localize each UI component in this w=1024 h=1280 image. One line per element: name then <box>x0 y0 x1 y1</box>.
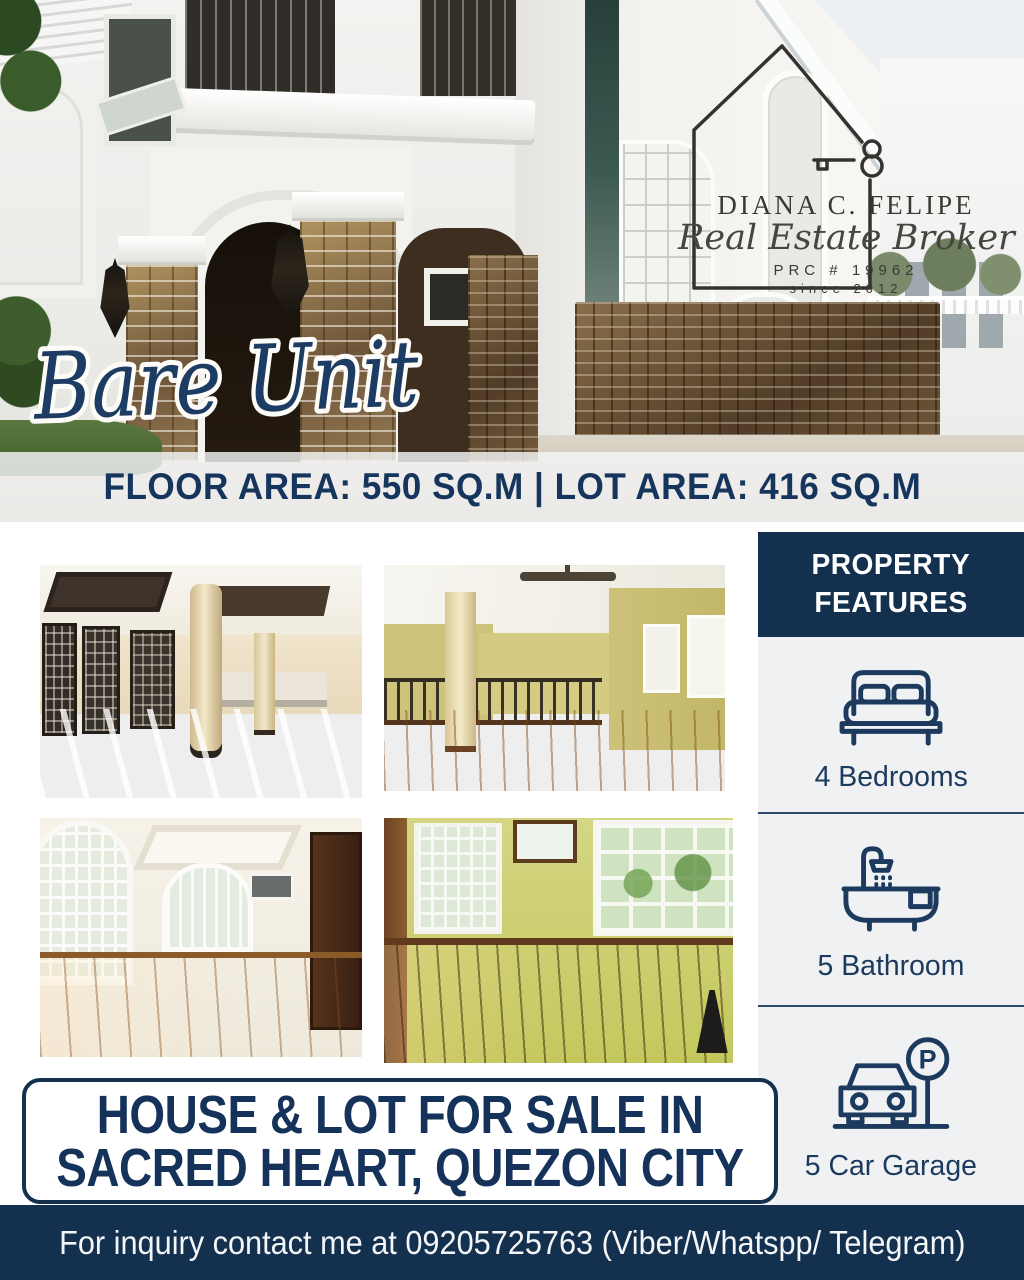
car-parking-icon: P <box>827 1032 955 1138</box>
headline-line1: HOUSE & LOT FOR SALE IN <box>97 1087 704 1143</box>
feature-label: 5 Bathroom <box>818 950 965 983</box>
headline-line2: SACRED HEART, QUEZON CITY <box>56 1140 744 1196</box>
living-area-photo <box>40 565 362 798</box>
photo-wood-floor <box>384 710 725 791</box>
footer-contact-text: For inquiry contact me at 09205725763 (V… <box>59 1224 965 1262</box>
brand-license: PRC # 19962 <box>678 262 1014 279</box>
photo-window <box>414 823 502 934</box>
feature-label: 5 Car Garage <box>805 1150 977 1183</box>
photo-wood-floor <box>384 945 733 1063</box>
photo-ceiling-fan <box>520 572 615 581</box>
feature-item-bathrooms: 5 Bathroom <box>758 812 1024 1007</box>
photo-window <box>593 820 733 936</box>
photo-stone-pier <box>468 255 538 462</box>
brand-tagline: Real Estate Broker <box>678 218 1014 258</box>
feature-item-garage: P 5 Car Garage <box>758 1005 1024 1207</box>
brand-since: since 2012 <box>678 281 1014 296</box>
photo-window <box>687 615 725 698</box>
photo-aircon-unit <box>249 873 294 901</box>
photo-window <box>513 820 577 862</box>
features-header-line1: PROPERTY <box>812 547 971 585</box>
green-room-photo <box>384 818 733 1063</box>
brand-logo: DIANA C. FELIPE Real Estate Broker PRC #… <box>678 22 1014 304</box>
photo-foliage <box>0 0 74 126</box>
feature-item-bedrooms: 4 Bedrooms <box>758 637 1024 812</box>
photo-bay-glass <box>585 0 619 315</box>
bed-icon <box>832 655 950 749</box>
svg-text:P: P <box>919 1044 937 1074</box>
photo-wood-floor <box>40 958 362 1057</box>
area-banner: FLOOR AREA: 550 SQ.M | LOT AREA: 416 SQ.… <box>0 452 1024 522</box>
footer-bar: For inquiry contact me at 09205725763 (V… <box>0 1205 1024 1280</box>
photo-window <box>643 624 680 693</box>
real-estate-flyer: DIANA C. FELIPE Real Estate Broker PRC #… <box>0 0 1024 1280</box>
photo-tile-floor <box>40 709 362 798</box>
features-sidebar: PROPERTY FEATURES 4 Bedrooms <box>758 532 1024 1205</box>
features-header: PROPERTY FEATURES <box>758 532 1024 637</box>
brand-name: DIANA C. FELIPE <box>678 190 1014 221</box>
headline-box: HOUSE & LOT FOR SALE IN SACRED HEART, QU… <box>22 1078 778 1204</box>
bathtub-icon <box>832 838 950 938</box>
photo-arched-window <box>162 863 253 952</box>
svg-text:Bare Unit: Bare Unit <box>30 320 421 440</box>
loft-hall-photo <box>384 565 725 791</box>
bare-unit-script-title: Bare Unit <box>12 312 442 472</box>
photo-balcony-railing <box>185 0 335 102</box>
features-header-line2: FEATURES <box>814 585 967 623</box>
area-banner-text: FLOOR AREA: 550 SQ.M | LOT AREA: 416 SQ.… <box>103 466 921 508</box>
bedroom-photo <box>40 818 362 1057</box>
feature-label: 4 Bedrooms <box>814 761 967 794</box>
photo-balcony-railing <box>420 0 516 96</box>
